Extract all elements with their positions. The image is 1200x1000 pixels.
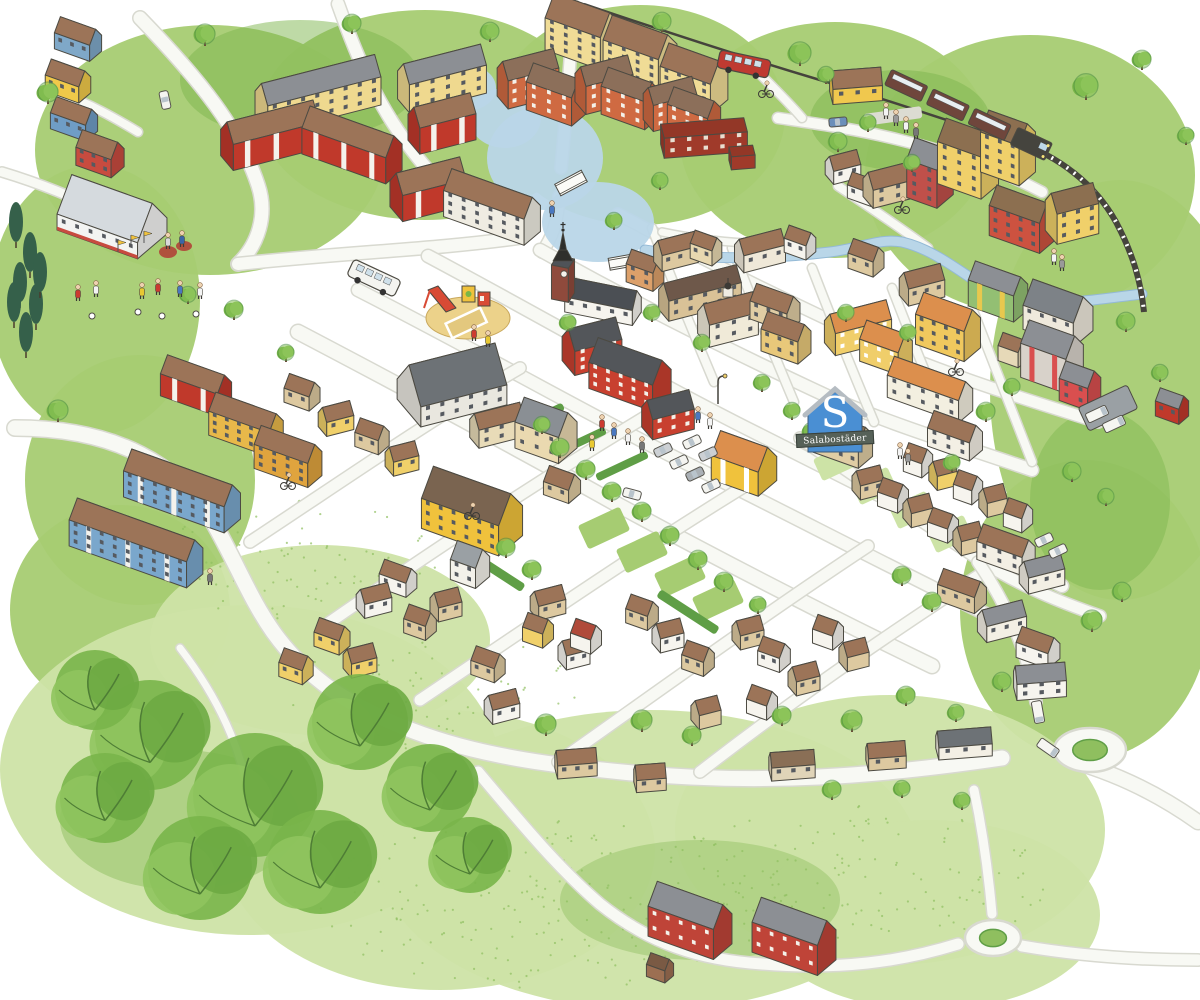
house xyxy=(927,411,982,462)
house xyxy=(1014,662,1067,700)
cottage xyxy=(732,615,764,650)
cottage xyxy=(570,618,601,654)
cottage xyxy=(758,636,791,672)
roundabout xyxy=(965,920,1021,956)
town-house xyxy=(761,311,811,364)
cottage xyxy=(626,594,659,630)
barn xyxy=(936,727,993,760)
factory xyxy=(729,145,755,170)
cottage xyxy=(355,418,389,455)
house xyxy=(543,466,580,504)
patch xyxy=(595,451,649,482)
farm-house xyxy=(555,747,597,779)
lamp xyxy=(718,374,727,404)
cottage xyxy=(788,661,820,696)
town-house xyxy=(735,229,786,273)
cottage xyxy=(691,695,721,730)
farm-house xyxy=(769,749,815,781)
bush xyxy=(159,246,177,258)
cottage xyxy=(484,689,520,725)
cottage xyxy=(318,401,354,437)
roundabout xyxy=(1054,728,1126,772)
cottage xyxy=(839,637,869,672)
cottage xyxy=(284,374,320,412)
map-canvas xyxy=(0,0,1200,1000)
house xyxy=(54,17,101,62)
station-house xyxy=(830,67,883,104)
salabostader-logo xyxy=(805,389,865,452)
cottage xyxy=(953,470,982,505)
illustrated-town-map: S Salabostäder xyxy=(0,0,1200,1000)
farm-house xyxy=(634,763,666,793)
car xyxy=(829,117,848,128)
car xyxy=(682,434,702,450)
car xyxy=(622,487,642,500)
farm-house xyxy=(866,741,906,771)
